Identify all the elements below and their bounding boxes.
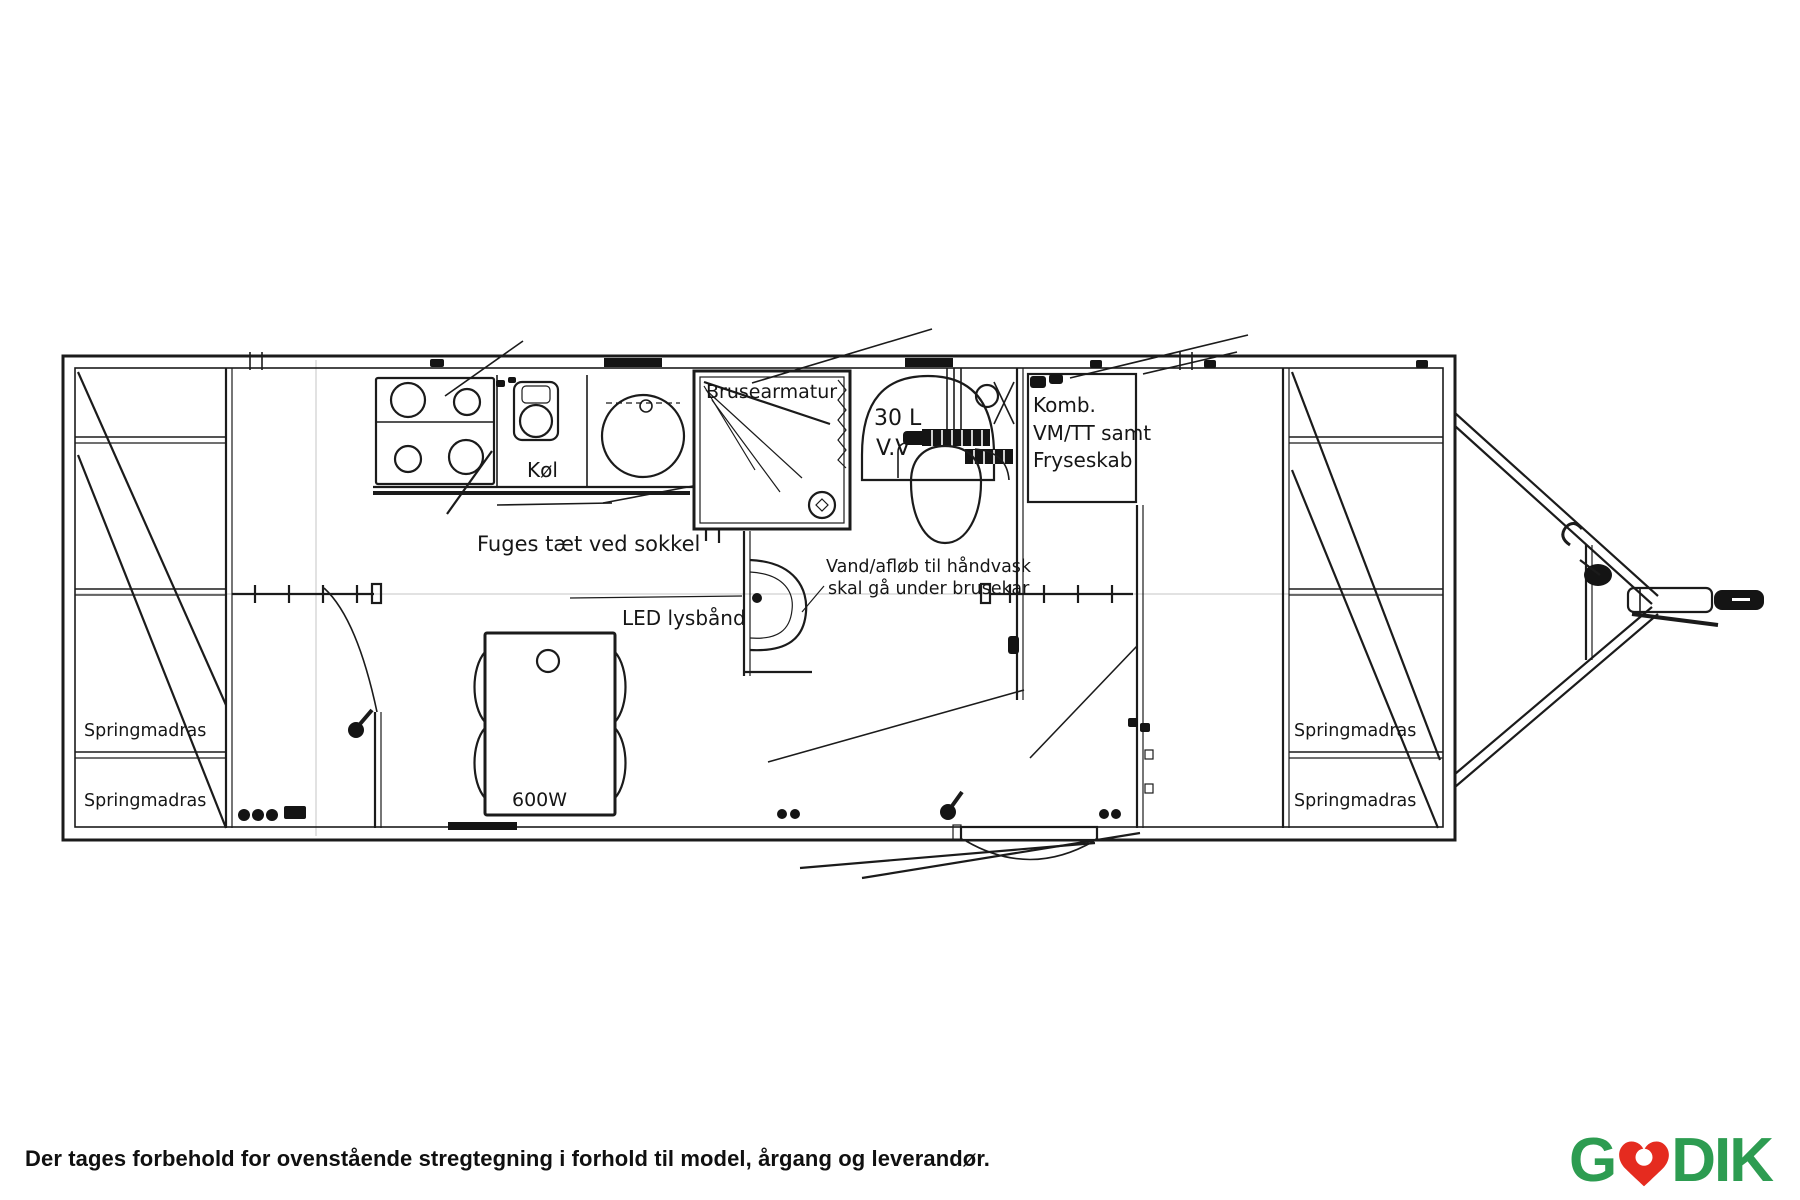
floor-plan-drawing: Springmadras Springmadras Springmadras S… bbox=[0, 0, 1800, 1200]
seal-note-label: Fuges tæt ved sokkel bbox=[477, 532, 700, 556]
mattress-label-3: Springmadras bbox=[1294, 721, 1416, 741]
right-bunk-beds: Springmadras Springmadras bbox=[1283, 368, 1443, 828]
top-leader-lines bbox=[445, 329, 1248, 396]
washbasin bbox=[744, 531, 812, 676]
screenshot: Springmadras Springmadras Springmadras S… bbox=[0, 0, 1800, 1200]
fridge-label: Køl bbox=[527, 458, 558, 482]
led-strip-label: LED lysbånd bbox=[622, 606, 746, 630]
kitchen-stove bbox=[376, 377, 516, 484]
drawbar-hitch bbox=[1455, 413, 1764, 787]
combi-label-2: VM/TT samt bbox=[1033, 421, 1151, 445]
kitchen-fridge: Køl bbox=[527, 458, 558, 482]
seal-note: Fuges tæt ved sokkel bbox=[447, 451, 700, 556]
water-heater-volume-label: 30 L bbox=[874, 406, 922, 431]
combi-label-1: Komb. bbox=[1033, 393, 1096, 417]
drain-note: Vand/afløb til håndvask skal gå under br… bbox=[802, 556, 1032, 612]
kitchen-round-sink bbox=[602, 395, 684, 477]
dinette-table: 600W bbox=[475, 633, 626, 815]
mattress-label-1: Springmadras bbox=[84, 721, 206, 741]
combi-label-3: Fryseskab bbox=[1033, 448, 1132, 472]
left-bunk-beds: Springmadras Springmadras bbox=[75, 368, 232, 828]
left-mid-rail bbox=[232, 584, 381, 603]
logo-text-dik: DIK bbox=[1671, 1130, 1772, 1192]
table-heater-label: 600W bbox=[512, 789, 567, 811]
drain-note-line2: skal gå under brusekar bbox=[828, 578, 1030, 599]
godik-logo: G DIK bbox=[1569, 1130, 1772, 1192]
disclaimer-text: Der tages forbehold for ovenstående stre… bbox=[25, 1146, 990, 1172]
mattress-label-4: Springmadras bbox=[1294, 791, 1416, 811]
led-strip: LED lysbånd bbox=[570, 596, 746, 630]
kitchen-small-sink bbox=[514, 382, 558, 440]
shower-cabin: Brusearmatur bbox=[694, 371, 850, 543]
mattress-label-2: Springmadras bbox=[84, 791, 206, 811]
logo-text-g: G bbox=[1569, 1130, 1615, 1192]
shower-label: Brusearmatur bbox=[706, 381, 837, 403]
combi-cabinet: Komb. VM/TT samt Fryseskab bbox=[1028, 374, 1151, 502]
heater-manifold bbox=[903, 429, 1013, 464]
heart-icon bbox=[1616, 1137, 1672, 1191]
entry-partition bbox=[1128, 505, 1153, 828]
drain-note-line1: Vand/afløb til håndvask bbox=[826, 556, 1032, 577]
entrance-door bbox=[800, 792, 1140, 878]
